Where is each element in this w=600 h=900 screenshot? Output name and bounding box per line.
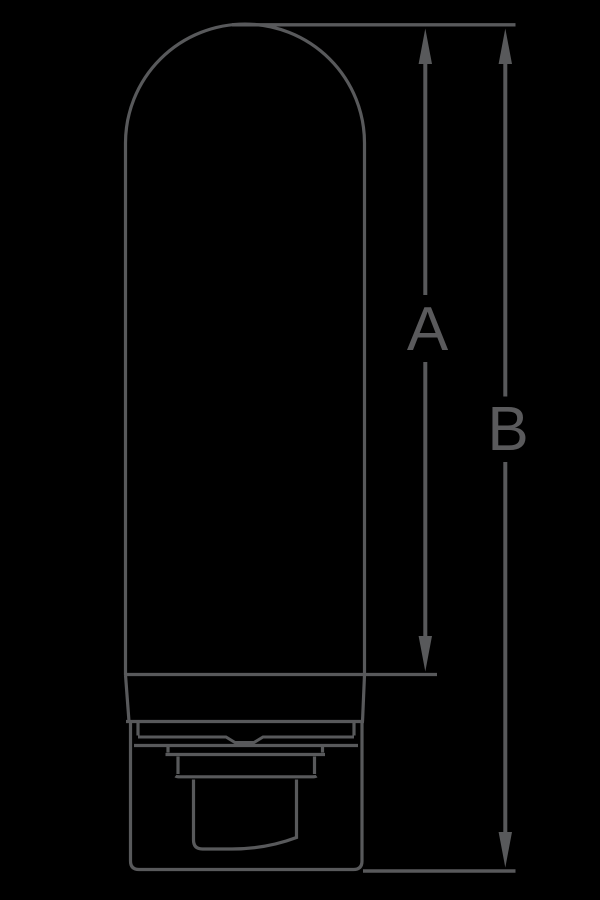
dimension-b: B bbox=[487, 29, 528, 868]
nozzle-outline bbox=[194, 780, 297, 850]
diagram-canvas: A B bbox=[0, 0, 600, 900]
cap bbox=[131, 723, 363, 870]
tube-body bbox=[126, 24, 438, 721]
collar-left-edge bbox=[126, 675, 130, 722]
dim-a-down-arrow-icon bbox=[419, 636, 432, 672]
tube-body-outline bbox=[126, 24, 365, 675]
dim-a-up-arrow-icon bbox=[419, 29, 432, 65]
seal-notch-line bbox=[138, 737, 354, 743]
dim-b-down-arrow-icon bbox=[499, 832, 512, 868]
collar-right-edge bbox=[363, 675, 365, 722]
neck-base-line bbox=[176, 776, 317, 777]
dimension-label-a: A bbox=[407, 295, 449, 364]
dimension-a: A bbox=[407, 29, 449, 672]
dim-b-up-arrow-icon bbox=[499, 29, 512, 65]
tube-dimension-drawing: A B bbox=[0, 0, 600, 900]
dimension-label-b: B bbox=[487, 395, 528, 464]
